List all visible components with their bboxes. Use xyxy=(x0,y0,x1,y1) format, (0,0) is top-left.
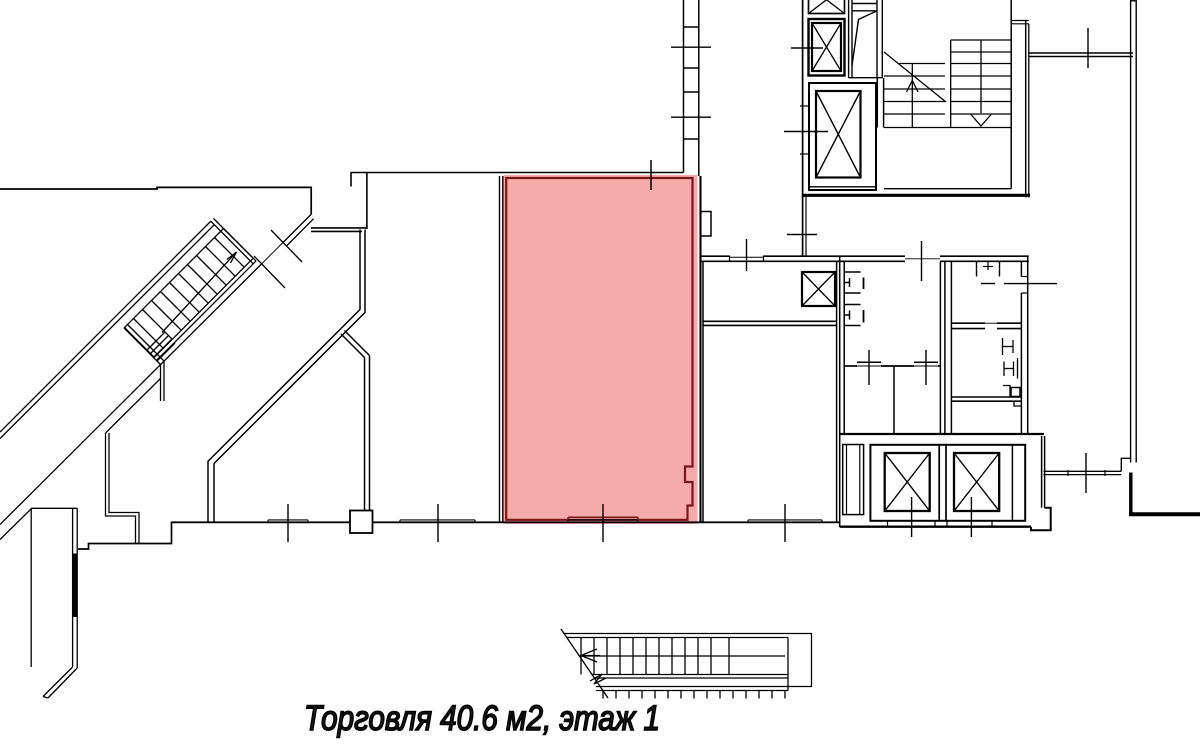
svg-text:Торговля 40.6 м2, этаж 1: Торговля 40.6 м2, этаж 1 xyxy=(304,699,660,738)
